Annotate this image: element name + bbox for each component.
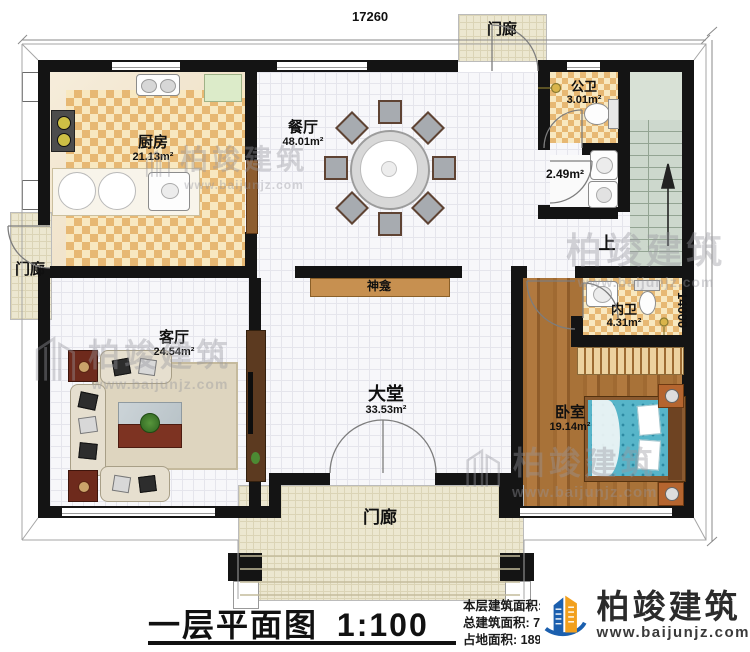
porch-column (228, 553, 262, 581)
plan-title: 一层平面图 1:100 (148, 600, 429, 646)
dining-label: 餐厅 48.01m² (255, 120, 351, 148)
stair-treads (630, 120, 682, 252)
side-table (68, 470, 98, 502)
stair-divider (648, 120, 649, 252)
dining-chair (432, 156, 456, 180)
public-bath-label: 公卫 3.01m² (552, 80, 616, 106)
wall (538, 60, 550, 150)
stair-landing (630, 72, 682, 120)
kitchen-label: 厨房 21.13m² (93, 135, 213, 163)
wall (269, 473, 281, 518)
plant (140, 413, 160, 433)
nightstand (658, 482, 684, 506)
wall-stairwell (618, 60, 630, 212)
wall-tv (249, 278, 261, 330)
plant-small (251, 452, 260, 464)
wall (367, 60, 458, 72)
wall (50, 266, 257, 278)
wall (511, 266, 527, 278)
wall (571, 335, 694, 347)
wall (180, 60, 277, 72)
wall (672, 506, 694, 518)
pillow (637, 404, 662, 436)
porch-left-label: 门廊 (11, 262, 49, 278)
kitchen-round-table (98, 172, 136, 210)
wall (38, 506, 62, 518)
porch-top-label: 门廊 (460, 22, 544, 38)
ensuite-toilet-tank (634, 280, 660, 291)
kitchen-round-table (58, 172, 96, 210)
kitchen-door-leaf (246, 160, 258, 234)
wall-tv (249, 480, 261, 506)
brand-name: 柏竣建筑 (597, 590, 741, 624)
wall (38, 268, 50, 518)
wall (499, 473, 511, 518)
window (520, 506, 672, 518)
kitchen-prep-sink (148, 172, 190, 211)
wall (575, 266, 694, 278)
window (277, 60, 367, 72)
kitchen-sink (136, 74, 180, 96)
brand-website: www.baijunjz.com (597, 624, 750, 641)
brand-logo-icon (540, 585, 591, 645)
wall (600, 60, 694, 72)
title-underline (148, 641, 456, 645)
stairs-up-label: 上 (592, 236, 622, 252)
dining-chair (378, 212, 402, 236)
brand-logo: 柏竣建筑 www.baijunjz.com (540, 582, 750, 648)
fridge (204, 74, 242, 102)
sofa-left (70, 384, 106, 476)
washing-machine (588, 181, 618, 208)
laundry-sink (590, 150, 618, 180)
toilet-bowl (584, 103, 610, 125)
dimension-top: 17260 (352, 9, 388, 24)
dining-table-center (381, 161, 397, 177)
wardrobe (577, 347, 684, 375)
shrine-label: 神龛 (310, 280, 448, 293)
dining-chair (324, 156, 348, 180)
living-label: 客厅 24.54m² (124, 330, 224, 358)
sofa-bottom (100, 466, 170, 502)
wall (38, 60, 50, 225)
wall-shrine (295, 266, 462, 278)
window (112, 60, 180, 72)
side-table (68, 350, 98, 382)
bedroom-label: 卧室 19.14m² (522, 405, 618, 433)
window (567, 60, 600, 72)
wall (538, 207, 618, 219)
porch-bottom-label: 门廊 (330, 510, 430, 526)
wall (245, 232, 257, 278)
porch-column (500, 553, 534, 581)
ensuite-label: 内卫 4.31m² (592, 303, 656, 329)
dining-chair (378, 100, 402, 124)
tv (248, 372, 253, 434)
stove (51, 110, 75, 152)
pillow (637, 439, 661, 470)
dimension-right: 14000 (675, 292, 690, 328)
floor-plan-canvas: 神龛 (0, 0, 750, 652)
window (62, 506, 215, 518)
wall-bedroom-west (511, 278, 523, 518)
hall-label: 大堂 33.53m² (336, 385, 436, 416)
laundry-label: 2.49m² (540, 168, 590, 180)
bed-headboard (668, 396, 682, 480)
nightstand (658, 384, 684, 408)
